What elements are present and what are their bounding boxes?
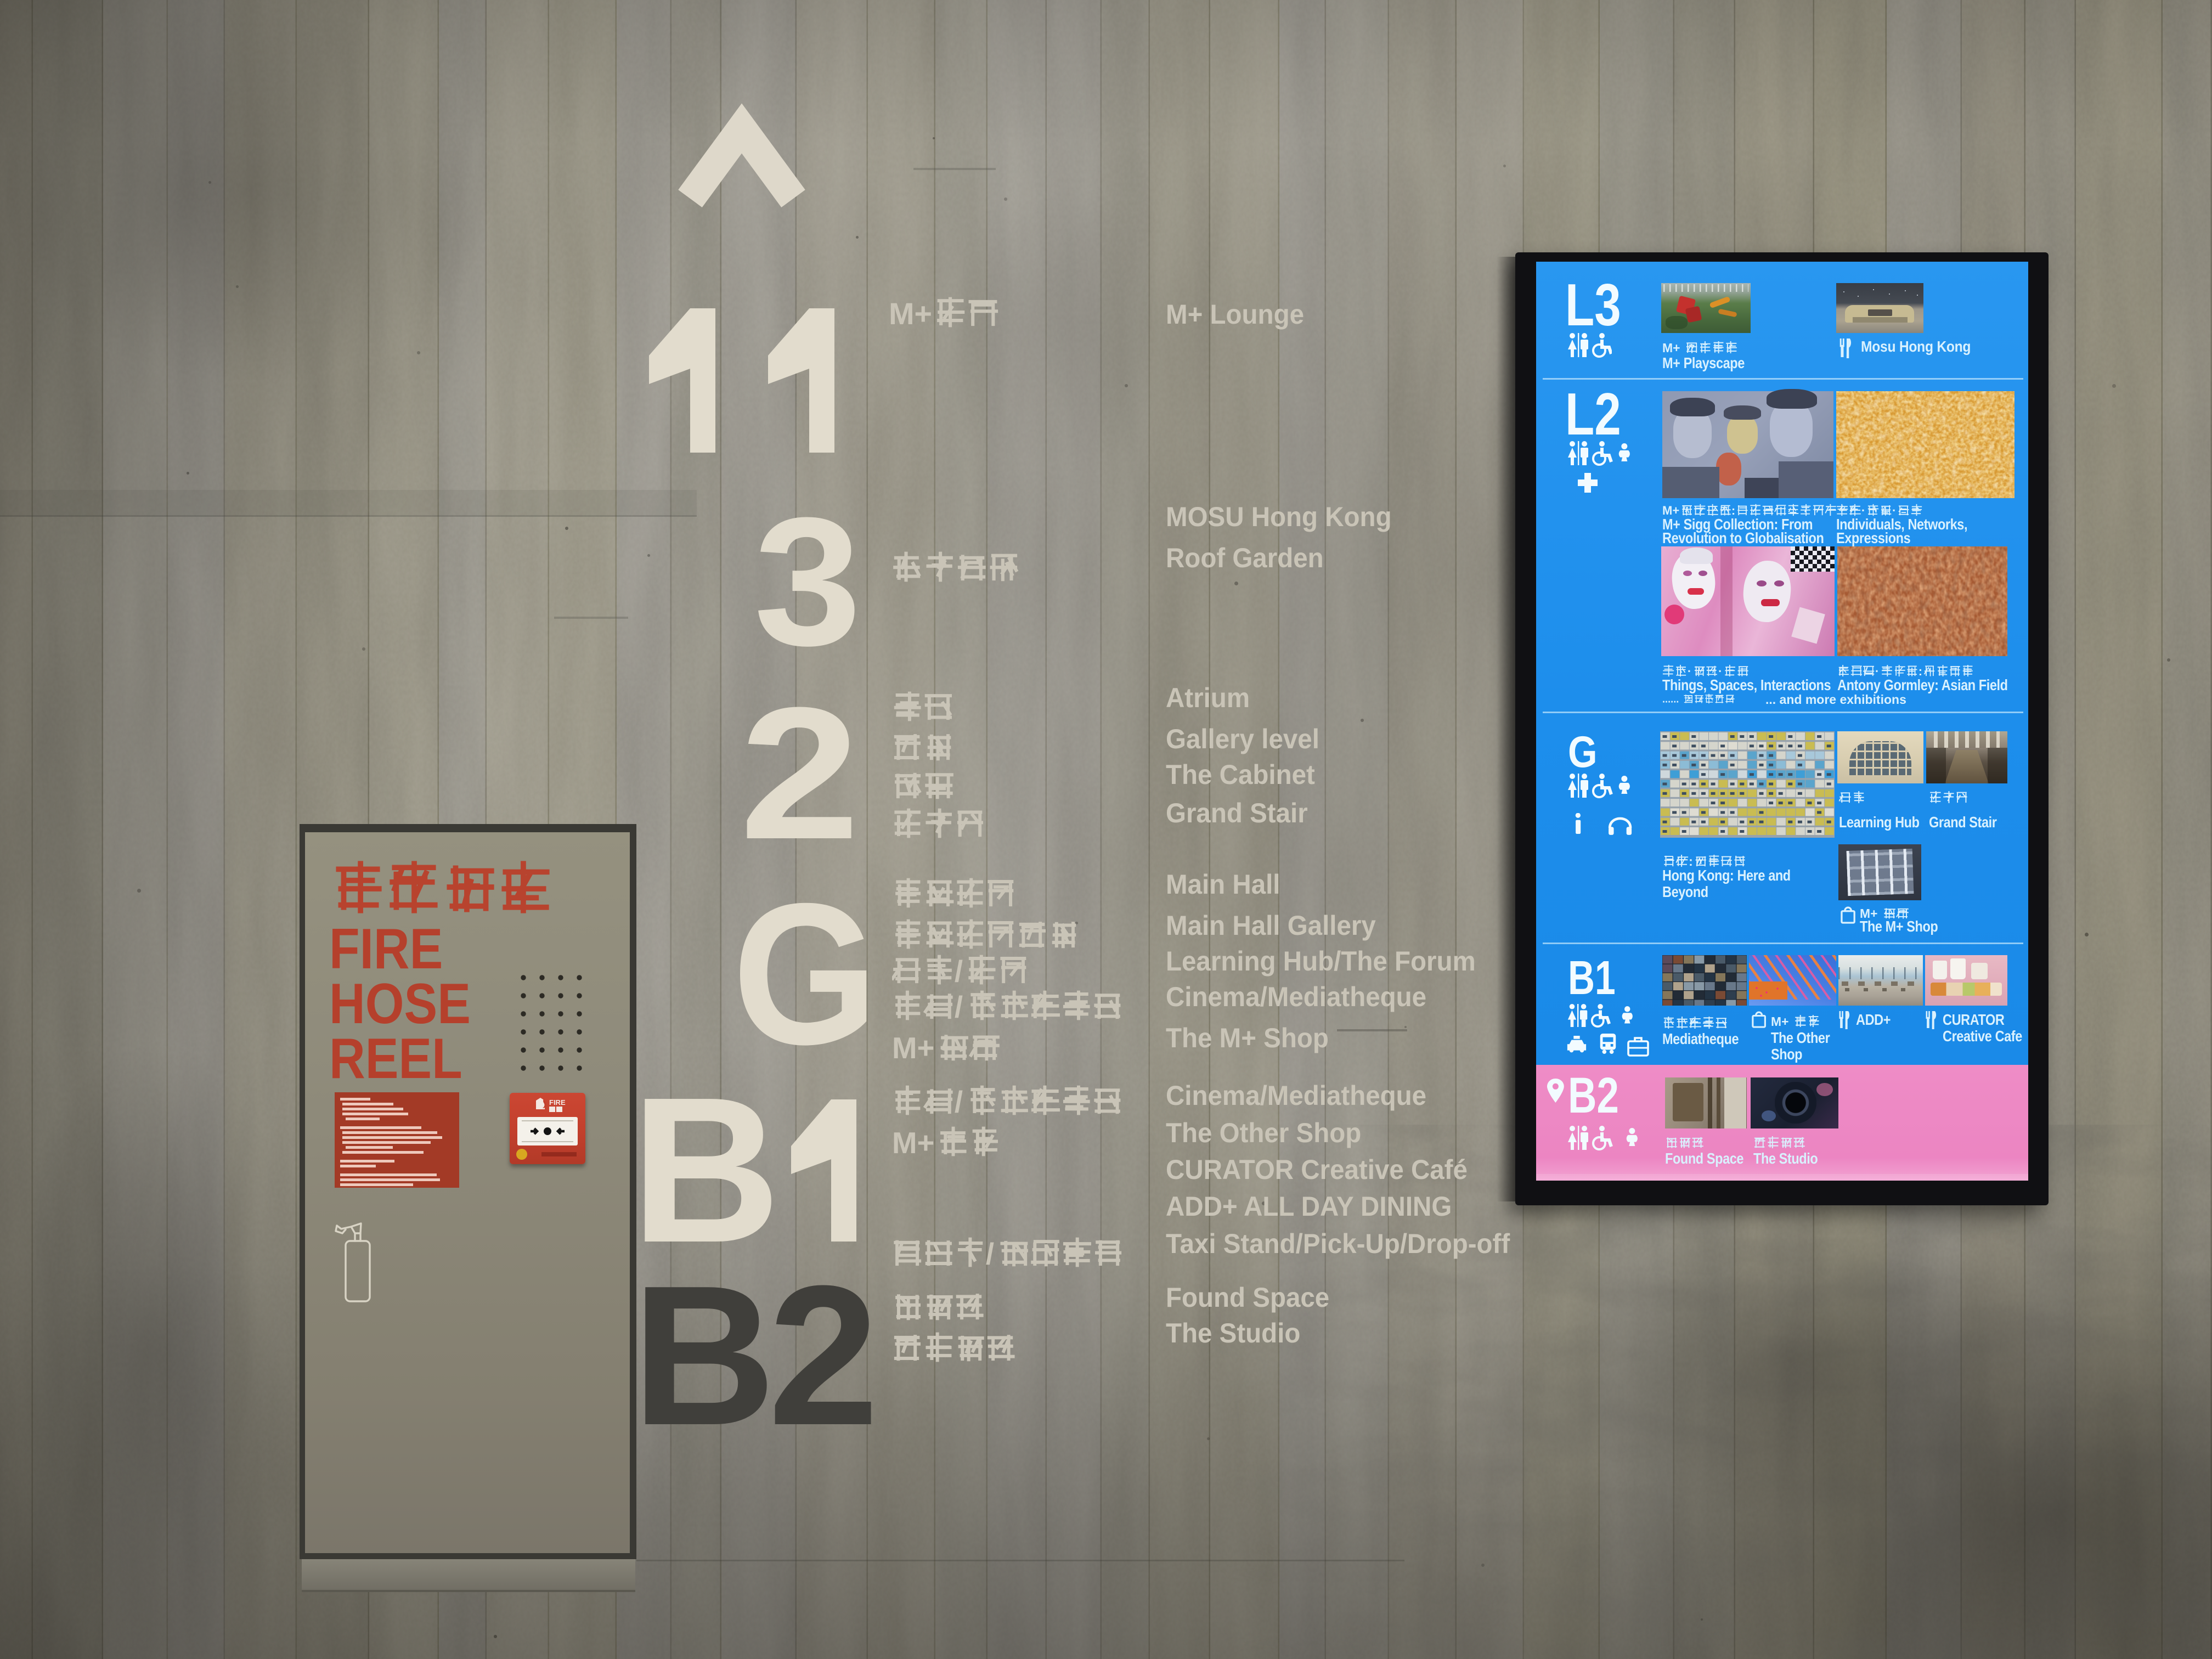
svg-text:·: ·: [1892, 504, 1896, 516]
svg-text:·: ·: [1875, 664, 1879, 677]
svg-text:/: /: [986, 1237, 994, 1268]
svg-text::: :: [1689, 854, 1693, 867]
svg-text:M+: M+: [1662, 341, 1684, 354]
svg-text:·: ·: [1861, 504, 1865, 516]
svg-text:/: /: [955, 990, 963, 1021]
svg-text:·: ·: [1718, 664, 1722, 677]
svg-text:·: ·: [1688, 664, 1691, 677]
svg-text:......: ......: [1662, 694, 1681, 704]
svg-text:M+: M+: [889, 297, 932, 328]
svg-text:/: /: [955, 955, 963, 985]
svg-text:M+: M+: [1662, 504, 1679, 516]
svg-text::: :: [1918, 664, 1922, 677]
svg-text::: :: [1731, 504, 1735, 516]
svg-text:FIRE: FIRE: [549, 1098, 566, 1107]
svg-text:M+: M+: [892, 1126, 934, 1157]
svg-text:M+: M+: [892, 1031, 934, 1062]
svg-text:M+: M+: [1771, 1014, 1792, 1028]
svg-text:/: /: [955, 1085, 963, 1116]
